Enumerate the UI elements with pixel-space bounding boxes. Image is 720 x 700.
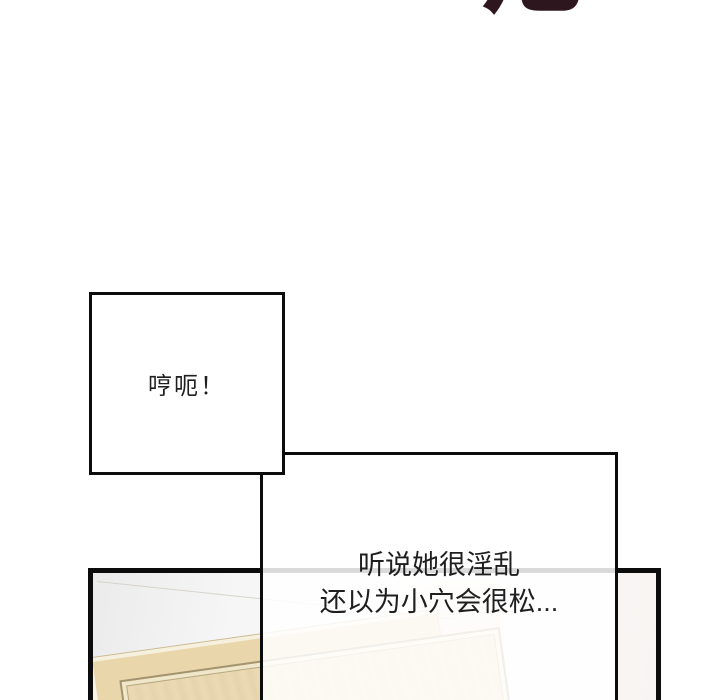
comic-page: 呃 听说她很淫乱 还以为小穴会很松... 哼呃！ <box>0 0 720 700</box>
narration-line-1: 听说她很淫乱 <box>263 547 615 584</box>
speech-box-narration: 听说她很淫乱 还以为小穴会很松... <box>260 452 618 700</box>
sfx-text: 呃 <box>446 0 584 30</box>
sfx-crop-region: 呃 <box>446 0 606 36</box>
narration-line-2: 还以为小穴会很松... <box>263 584 615 621</box>
shout-text: 哼呃！ <box>148 366 226 401</box>
speech-box-shout: 哼呃！ <box>89 292 285 475</box>
